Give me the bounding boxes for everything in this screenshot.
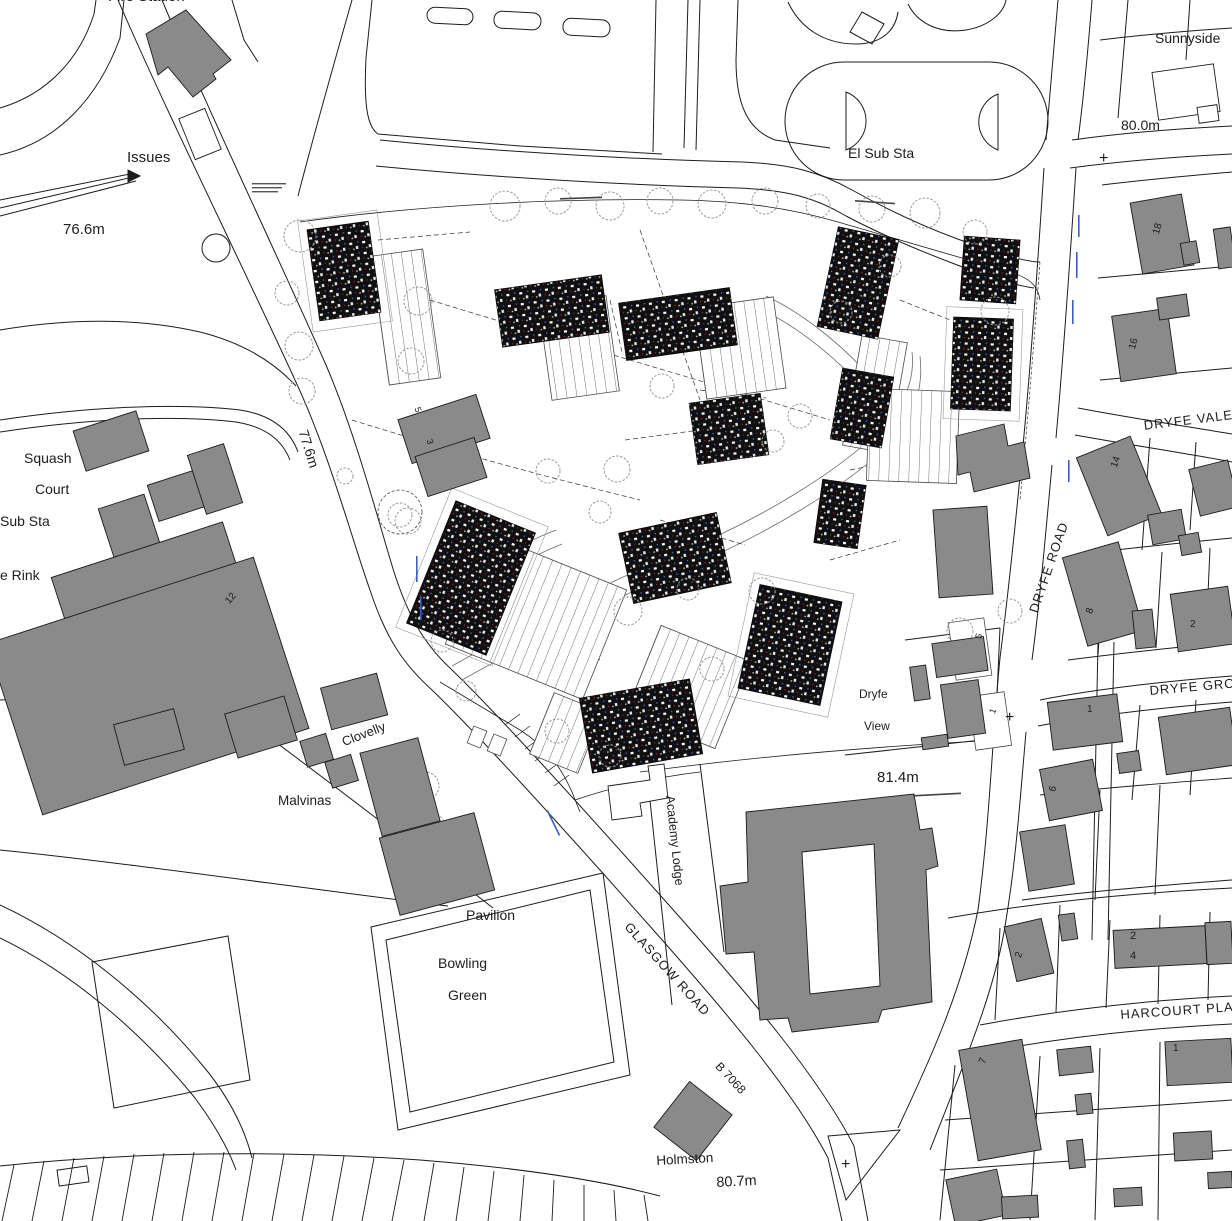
site-location-plan: Fire Station Issues 76.6m El Sub Sta Sun…: [0, 0, 1232, 1221]
label-dryfe-view-line2: View: [864, 720, 890, 732]
allotment-hatching: [2, 1152, 648, 1221]
spot-height-81-4: 81.4m: [877, 770, 919, 785]
spot-height-80-0: 80.0m: [1121, 118, 1160, 132]
label-rink: e Rink: [0, 568, 40, 582]
label-issues: Issues: [127, 150, 170, 165]
house-number-1-harcourt: 1: [1173, 1044, 1179, 1054]
label-malvinas: Malvinas: [278, 794, 331, 808]
house-number-1-dryfe-grove: 1: [1087, 705, 1093, 715]
label-fire-station: Fire Station: [108, 0, 185, 4]
label-holmston: Holmston: [656, 1151, 714, 1167]
label-green: Green: [448, 988, 487, 1002]
map-linework: [0, 0, 1232, 1221]
survey-cross-1: +: [1099, 151, 1108, 167]
house-number-2-row: 2: [1130, 931, 1136, 942]
house-number-2-dryfe-vale: 2: [1190, 620, 1196, 630]
spot-height-80-7: 80.7m: [716, 1174, 757, 1191]
label-squash: Squash: [24, 451, 71, 465]
spot-height-76-6: 76.6m: [63, 222, 105, 237]
label-sunnyside: Sunnyside: [1155, 31, 1220, 45]
survey-cross-2: +: [1005, 710, 1014, 726]
label-bowling: Bowling: [438, 956, 487, 970]
survey-cross-3: +: [841, 1157, 850, 1173]
label-sub-sta: Sub Sta: [0, 514, 50, 528]
label-el-sub-sta: El Sub Sta: [848, 146, 914, 160]
label-pavilion: Pavilion: [466, 908, 515, 922]
house-number-4-row: 4: [1130, 951, 1136, 962]
label-dryfe-view-line1: Dryfe: [859, 688, 888, 700]
label-court: Court: [35, 482, 69, 496]
